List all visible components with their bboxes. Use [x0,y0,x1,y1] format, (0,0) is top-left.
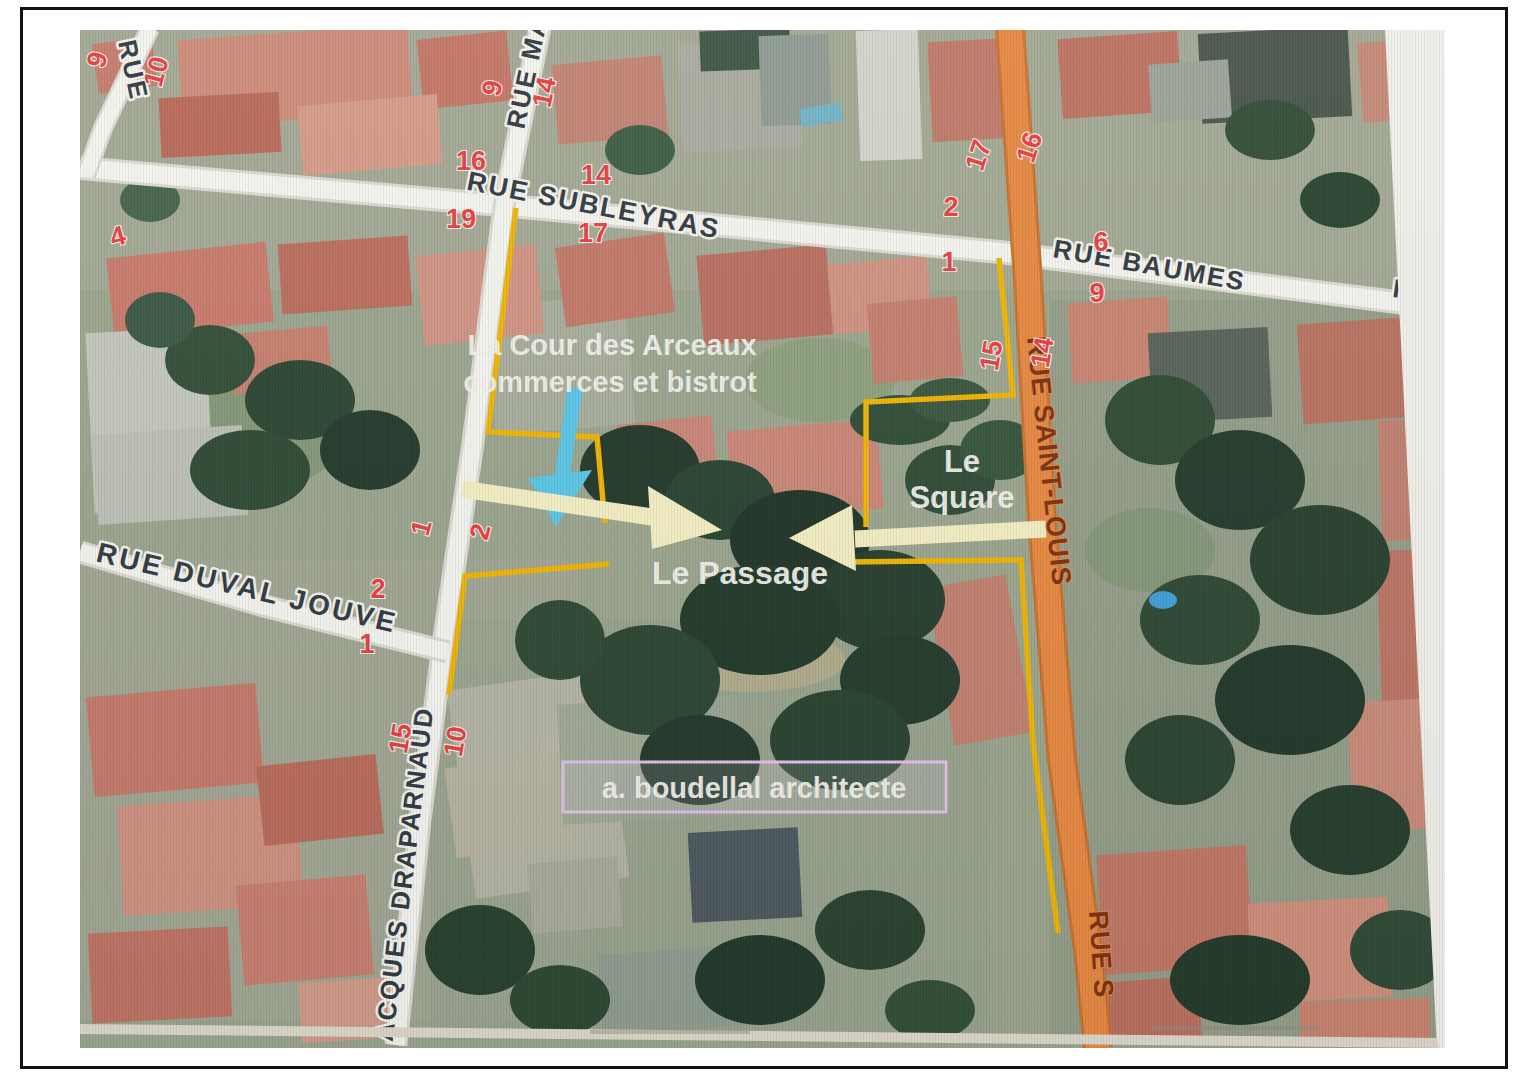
house-number: 16 [456,146,486,176]
label-le-square-line2: Square [909,480,1014,515]
photo-of-map-screenshot: RUE RUE MA RUE SUBLEYRAS RUE BAUMES RUE … [0,0,1528,1080]
illegible-watermark [1150,1026,1320,1030]
house-number: 17 [578,218,608,248]
house-number: 9 [1089,278,1104,308]
label-le-square-line1: Le [944,444,980,479]
house-number: 14 [1025,335,1060,370]
house-number: 1 [941,247,956,277]
label-cour-des-arceaux-line1: La Cour des Arceaux [467,329,756,361]
label-architect-credit: a. boudellal architecte [602,772,907,804]
house-number: 19 [446,204,476,234]
house-number: 2 [370,574,385,604]
house-number: 14 [581,160,611,190]
street-label-rue-s: RUE S [1083,910,1119,999]
house-number: 15 [383,721,418,756]
house-number: 1 [359,629,374,659]
house-number: 2 [943,192,958,222]
house-number: 6 [1093,227,1108,257]
house-number: 14 [526,74,562,110]
label-cour-des-arceaux-line2: commerces et bistrot [463,366,757,398]
illegible-watermark [590,1030,750,1034]
house-number: 10 [438,724,473,759]
house-number: 15 [974,338,1009,373]
architect-credit-box: a. boudellal architecte [563,762,946,812]
label-le-passage: Le Passage [652,555,828,591]
satellite-map: RUE RUE MA RUE SUBLEYRAS RUE BAUMES RUE … [80,30,1445,1048]
